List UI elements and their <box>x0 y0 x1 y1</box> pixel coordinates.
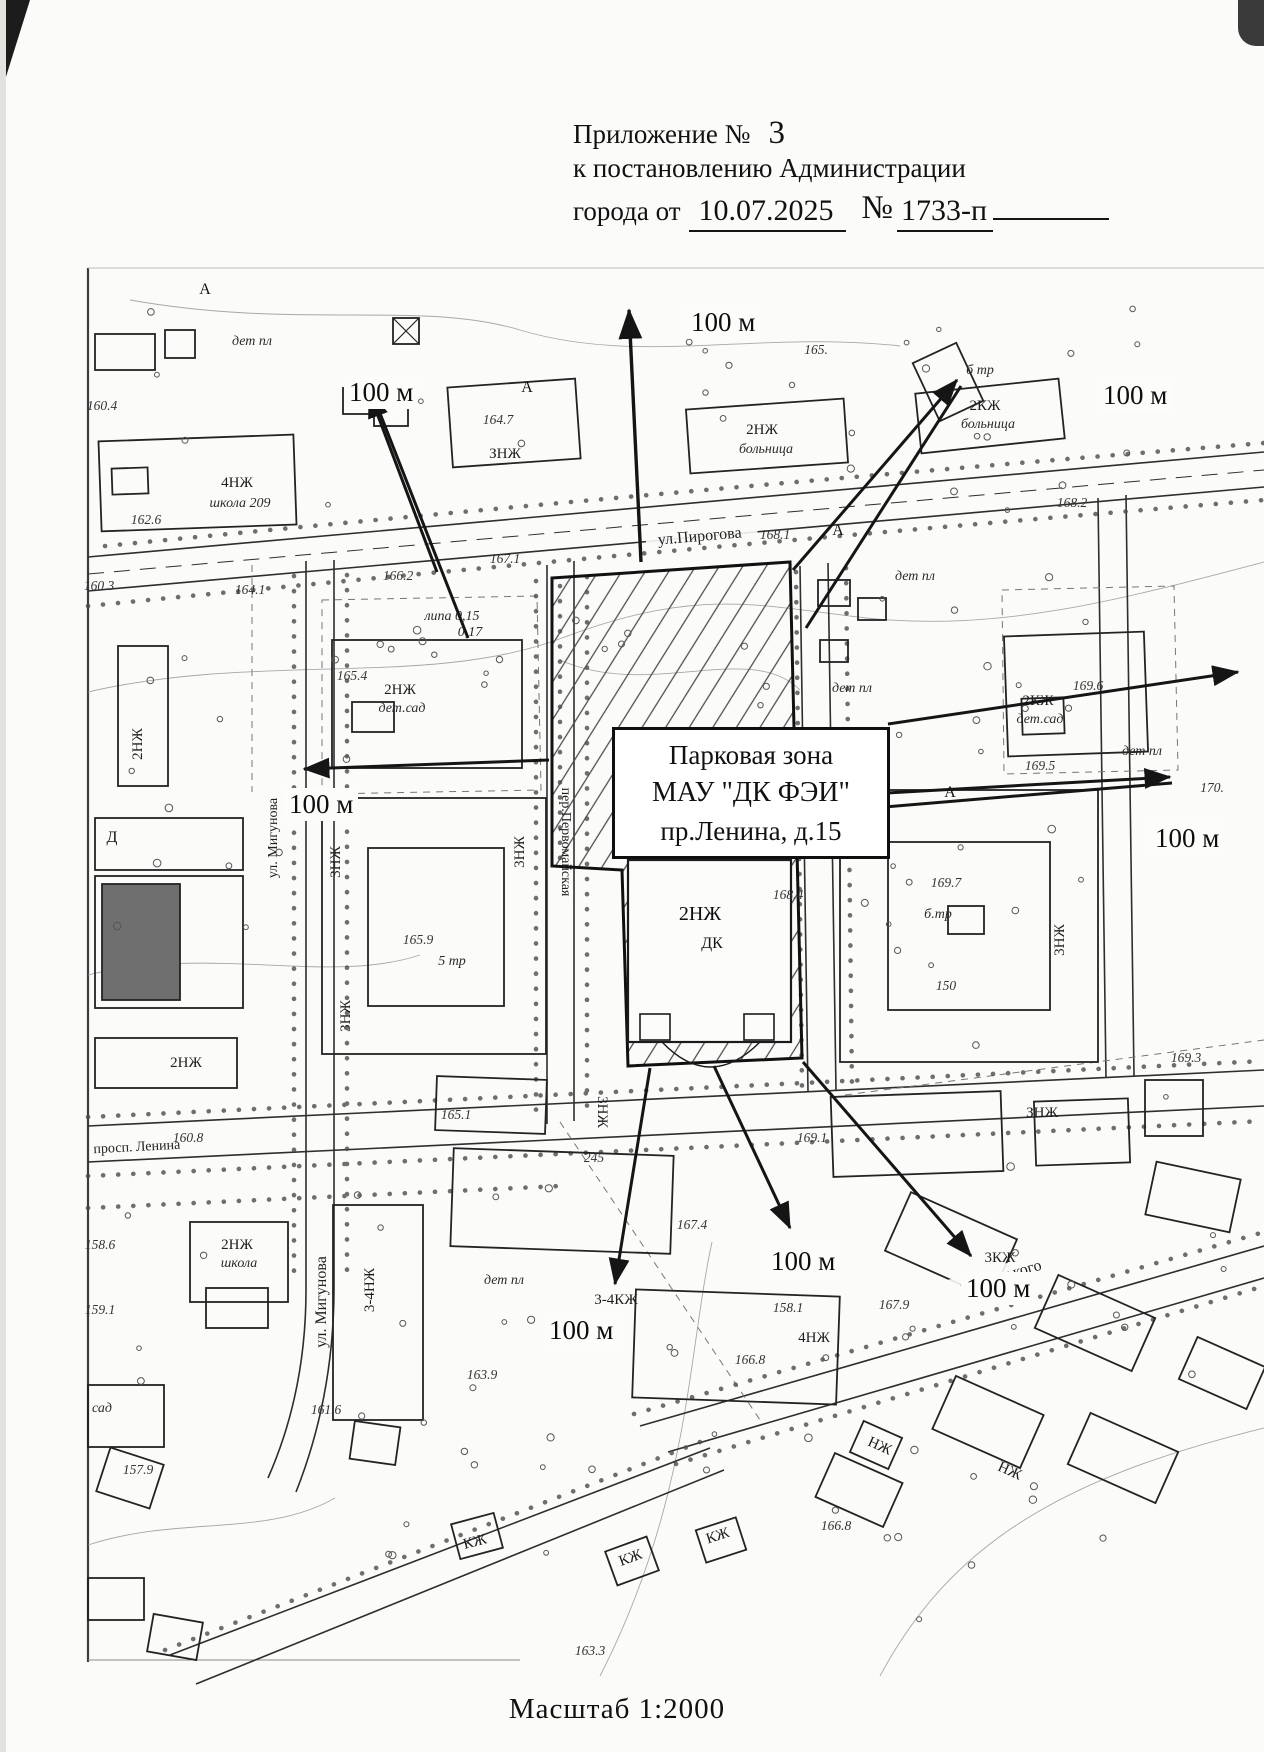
site-label-playground: дет пл <box>1122 744 1162 759</box>
dk-floors-label: 2НЖ <box>679 903 721 925</box>
elevation-mark: 159.1 <box>85 1302 115 1317</box>
distance-label-north: 100 м <box>686 306 760 339</box>
distance-label-south: 100 м <box>766 1245 840 1278</box>
elevation-mark: 169.1 <box>797 1130 827 1145</box>
elevation-mark: 170. <box>1200 780 1224 795</box>
elevation-mark: 165.1 <box>441 1107 471 1122</box>
appendix-label: Приложение № <box>573 119 750 149</box>
elevation-mark: 168.1 <box>760 527 790 542</box>
dk-building <box>628 860 791 1067</box>
elevation-mark: 168.4 <box>773 887 804 902</box>
elevation-mark: 163.3 <box>575 1643 606 1658</box>
block-letter-a: А <box>521 379 533 396</box>
elevation-mark: 158.6 <box>85 1237 116 1252</box>
elevation-mark: 166.8 <box>821 1518 852 1533</box>
site-label-transformer: б тр <box>966 363 994 378</box>
document-header: Приложение №3 к постановлению Администра… <box>573 116 1213 232</box>
resolution-date: 10.07.2025 <box>689 194 846 232</box>
elevation-mark: 158.1 <box>773 1300 803 1315</box>
elevation-mark: 165.9 <box>403 932 434 947</box>
building-label-floors: 3НЖ <box>512 836 528 868</box>
elevation-mark: 167.1 <box>490 551 520 566</box>
building-label-floors: 2НЖ <box>130 728 146 760</box>
elevation-mark: 162.6 <box>131 512 162 527</box>
building-label-floors: КЖ <box>704 1525 732 1548</box>
elevation-mark: 167.4 <box>677 1217 708 1232</box>
elevation-mark: 169.7 <box>931 875 963 890</box>
scanned-document-page: ул.Пирогова просп. Ленина ул. Мигунова у… <box>0 0 1264 1752</box>
elevation-mark: 161.6 <box>311 1402 342 1417</box>
elevation-mark: 169.6 <box>1073 678 1104 693</box>
distance-label-south-east: 100 м <box>961 1272 1035 1305</box>
elevation-mark: 150 <box>936 978 957 993</box>
scan-artifact-left-edge <box>0 0 6 1752</box>
building-label-floors: КЖ <box>617 1547 645 1570</box>
elevation-mark: 245 <box>584 1150 605 1165</box>
scan-artifact-top-right <box>1238 0 1264 46</box>
building-label-floors: НЖ <box>995 1459 1024 1484</box>
building-label-floors: 3КЖ <box>985 1250 1017 1266</box>
zone-address: пр.Ленина, д.15 <box>625 812 877 850</box>
elevation-mark: 164.1 <box>235 582 265 597</box>
zone-institution: МАУ "ДК ФЭИ" <box>625 774 877 812</box>
building-label-floors: 3-4КЖ <box>594 1292 638 1308</box>
radius-arrow-north-east <box>793 380 957 570</box>
building-label-floors: НЖ <box>865 1434 894 1459</box>
distance-label-north-west: 100 м <box>344 376 418 409</box>
building-label-floors: 3НЖ <box>1052 924 1068 956</box>
building-label-floors: 3НЖ <box>594 1096 610 1128</box>
date-number-line: города от 10.07.2025 № 1733-п <box>573 188 1213 232</box>
building-label-floors: 3НЖ <box>338 1000 354 1032</box>
number-sign: № <box>862 191 894 225</box>
building-label-name: школа 209 <box>209 496 270 511</box>
city-plan-map: ул.Пирогова просп. Ленина ул. Мигунова у… <box>0 0 1264 1752</box>
site-label-transformer: б.тр <box>924 907 952 922</box>
elevation-mark: 167.9 <box>879 1297 910 1312</box>
site-label-playground: дет пл <box>232 334 272 349</box>
building-label-floors: 2НЖ <box>170 1055 202 1071</box>
building-label-name: больница <box>739 442 793 457</box>
building-label-floors: 2НЖ <box>746 422 778 438</box>
building-label-floors: 2НЖ <box>384 682 416 698</box>
street-label-lenina: просп. Ленина <box>93 1138 181 1158</box>
building-label-floors: 3НЖ <box>328 846 344 878</box>
site-label-garden: сад <box>92 1401 112 1416</box>
site-label-tree: липа 0,15 <box>423 609 479 624</box>
zone-title: Парковая зона <box>625 736 877 774</box>
park-zone-label-box: Парковая зона МАУ "ДК ФЭИ" пр.Ленина, д.… <box>612 727 890 859</box>
radius-arrow-north-west-2 <box>374 398 468 638</box>
site-label-tree-2: 0,17 <box>458 625 484 640</box>
distance-label-east: 100 м <box>1150 822 1224 855</box>
block-letter-d: Д <box>107 829 118 846</box>
elevation-mark: 163.9 <box>467 1367 498 1382</box>
site-label-tr5: 5 тр <box>438 954 466 969</box>
site-label-playground: дет пл <box>895 569 935 584</box>
dk-name-label: ДК <box>701 935 723 952</box>
site-label-playground: дет пл <box>484 1273 524 1288</box>
building-label-floors: ЗНЖ <box>1026 1105 1058 1121</box>
building-label-floors: 3-4НЖ <box>362 1267 378 1312</box>
site-label-playground: дет пл <box>832 681 872 696</box>
elevation-mark: 160.8 <box>173 1130 204 1145</box>
building-label-floors: 4НЖ <box>798 1330 830 1346</box>
distance-label-south-west: 100 м <box>544 1314 618 1347</box>
radius-arrow-south <box>714 1066 790 1228</box>
elevation-mark: 164.7 <box>483 412 515 427</box>
distance-label-north-east: 100 м <box>1098 379 1172 412</box>
resolution-number: 1733-п <box>897 194 993 232</box>
elevation-mark: 169.5 <box>1025 758 1056 773</box>
underline-tail <box>993 188 1109 220</box>
street-label-migunova-upper: ул. Мигунова <box>266 797 281 878</box>
appendix-line: Приложение №3 <box>573 116 1213 151</box>
building-label-floors: 2НЖ <box>221 1237 253 1253</box>
radius-arrow-north <box>629 310 641 562</box>
distance-label-west: 100 м <box>284 788 358 821</box>
map-scale-label: Масштаб 1:2000 <box>352 1693 882 1726</box>
elevation-mark: 165. <box>804 342 828 357</box>
building-label-floors: КЖ <box>462 1531 489 1553</box>
street-label-migunova: ул. Мигунова <box>313 1256 330 1348</box>
building-label-floors: 2КЖ <box>970 398 1002 414</box>
appendix-number: 3 <box>768 115 785 151</box>
radius-arrow-north-west <box>369 392 437 572</box>
elevation-mark: 160.4 <box>87 398 118 413</box>
resolution-line: к постановлению Администрации <box>573 151 1213 185</box>
elevation-mark: 160.3 <box>84 578 115 593</box>
building-label-name: школа <box>221 1256 258 1271</box>
street-label-pervomayskaya: пер.Первомайская <box>558 788 573 897</box>
block-letter-a: А <box>199 281 211 298</box>
elevation-mark: 166.8 <box>735 1352 766 1367</box>
radius-arrow-south-east <box>803 1062 971 1256</box>
building-label-name: больница <box>961 417 1015 432</box>
building-label-name: дет.сад <box>1017 712 1064 727</box>
building-label-floors: 4НЖ <box>221 475 253 491</box>
elevation-mark: 166.2 <box>383 568 414 583</box>
block-letter-a: А <box>944 784 956 801</box>
date-prefix: города от <box>573 194 681 228</box>
elevation-mark: 169.3 <box>1171 1050 1202 1065</box>
building-label-name: дет.сад <box>379 701 426 716</box>
elevation-mark: 168.2 <box>1057 495 1088 510</box>
building-label-floors: ЗНЖ <box>489 446 521 462</box>
elevation-mark: 157.9 <box>123 1462 154 1477</box>
elevation-mark: 165.4 <box>337 668 368 683</box>
radius-arrow-north-east-2 <box>806 386 961 628</box>
